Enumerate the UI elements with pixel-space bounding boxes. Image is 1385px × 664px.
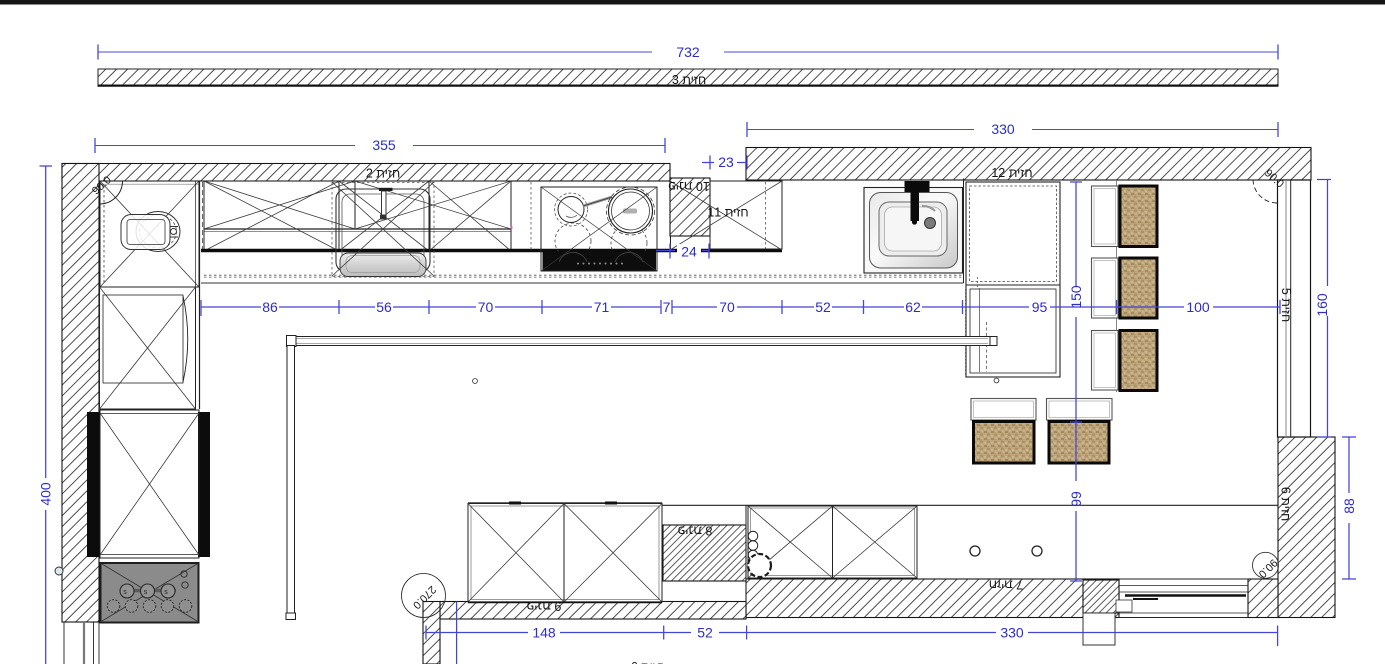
svg-text:s: s bbox=[144, 589, 148, 596]
svg-text:70: 70 bbox=[478, 299, 494, 315]
svg-text:5 חזית: 5 חזית bbox=[1279, 288, 1293, 322]
svg-text:9 פינת: 9 פינת bbox=[527, 599, 562, 613]
svg-text:71: 71 bbox=[594, 299, 610, 315]
svg-text:95: 95 bbox=[1032, 299, 1048, 315]
svg-text:355: 355 bbox=[372, 137, 396, 153]
svg-text:148: 148 bbox=[532, 625, 556, 641]
svg-text:3 חזית: 3 חזית bbox=[672, 73, 706, 87]
svg-text:7: 7 bbox=[663, 299, 671, 315]
svg-text:86: 86 bbox=[262, 299, 278, 315]
svg-text:6 חזית: 6 חזית bbox=[1279, 487, 1293, 521]
svg-text:88: 88 bbox=[1341, 498, 1357, 514]
svg-text:11 חזית: 11 חזית bbox=[707, 206, 748, 220]
svg-text:56: 56 bbox=[376, 299, 392, 315]
svg-text:s: s bbox=[164, 589, 168, 596]
svg-text:23: 23 bbox=[718, 154, 734, 170]
svg-text:400: 400 bbox=[38, 482, 54, 506]
svg-text:732: 732 bbox=[676, 44, 700, 60]
svg-text:24: 24 bbox=[681, 244, 697, 260]
svg-text:10 פינת: 10 פינת bbox=[668, 179, 710, 193]
svg-text:330: 330 bbox=[1000, 625, 1024, 641]
svg-text:6 חזית: 6 חזית bbox=[631, 660, 665, 664]
svg-text:52: 52 bbox=[815, 299, 831, 315]
svg-text:52: 52 bbox=[697, 625, 713, 641]
svg-text:s: s bbox=[123, 589, 127, 596]
svg-text:100: 100 bbox=[1186, 299, 1210, 315]
svg-text:150: 150 bbox=[1068, 285, 1084, 309]
svg-text:2 חזית: 2 חזית bbox=[366, 167, 400, 181]
svg-text:62: 62 bbox=[905, 299, 921, 315]
svg-text:160: 160 bbox=[1314, 293, 1330, 317]
svg-text:330: 330 bbox=[991, 121, 1015, 137]
svg-text:12 חזית: 12 חזית bbox=[991, 166, 1032, 180]
svg-text:99: 99 bbox=[1068, 491, 1084, 507]
svg-text:70: 70 bbox=[719, 299, 735, 315]
svg-text:7 חזית: 7 חזית bbox=[989, 578, 1023, 592]
svg-text:8 פינת: 8 פינת bbox=[678, 524, 713, 538]
